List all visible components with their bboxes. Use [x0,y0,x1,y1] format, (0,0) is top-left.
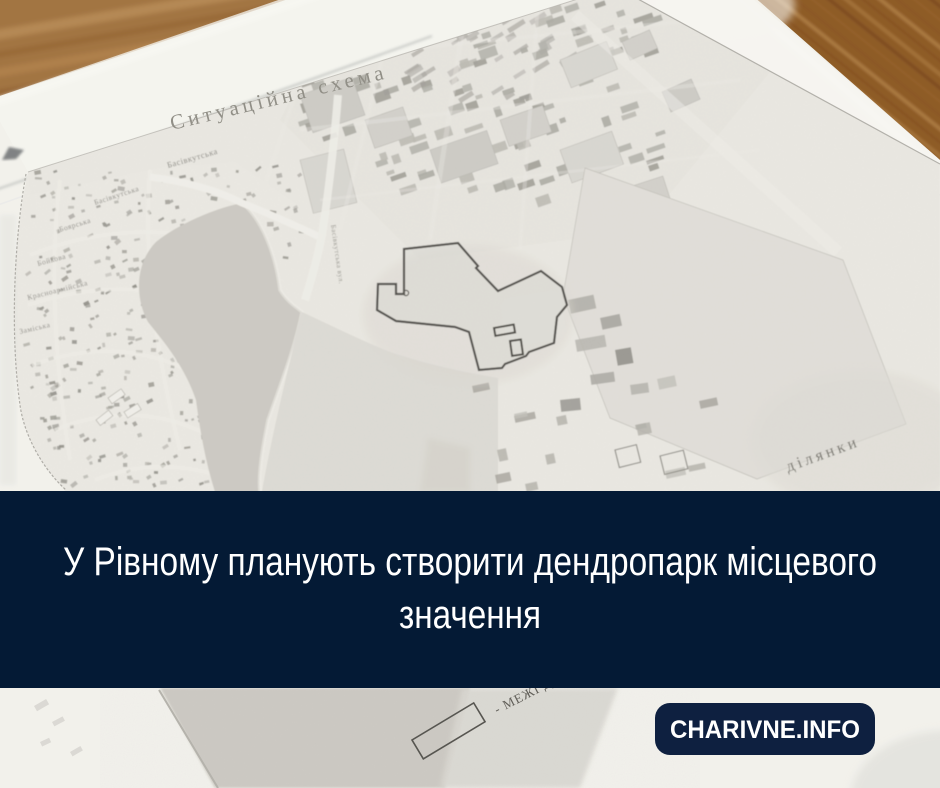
svg-text:значення: значення [399,593,541,637]
svg-text:У Рівному планують створити де: У Рівному планують створити дендропарк м… [63,540,877,584]
svg-text:CHARIVNE.INFO: CHARIVNE.INFO [670,716,860,744]
